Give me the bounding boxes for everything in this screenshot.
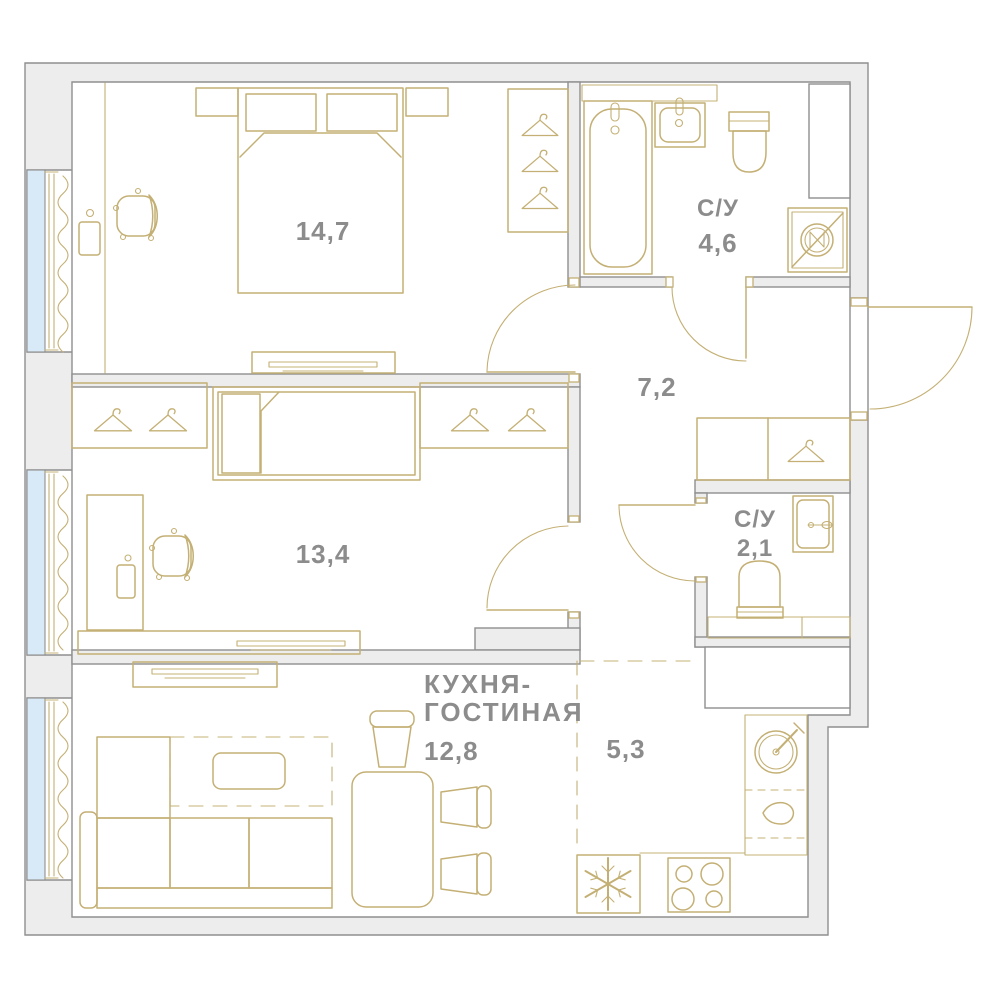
duct-shaft-kitchen: [705, 647, 850, 708]
wc-area-label: 2,1: [737, 535, 773, 562]
tv-console: [133, 662, 277, 687]
wc-counter: [708, 617, 850, 638]
kitchen-sink-icon: [755, 723, 804, 773]
bathroom-name-label: С/У: [697, 195, 739, 222]
nightstand: [196, 88, 238, 116]
toilet-icon: [737, 561, 783, 618]
office-chair-icon: [114, 189, 158, 241]
wall-end-caps: [569, 277, 867, 618]
curtain-icon: [58, 476, 68, 650]
toilet-icon: [729, 112, 769, 172]
curtain-icon: [58, 176, 68, 352]
washing-machine-icon: [788, 208, 847, 272]
desk: [79, 210, 100, 256]
sink-icon: [655, 98, 705, 147]
kitchen-zone-area-label: 5,3: [606, 734, 645, 764]
bedroom2-area-label: 13,4: [296, 539, 351, 569]
desk: [87, 495, 143, 630]
corner-sofa-icon: [80, 737, 332, 908]
stove-icon: [668, 858, 730, 912]
tv-console: [252, 352, 395, 373]
chair: [370, 711, 414, 767]
window-bedroom1: [27, 170, 68, 352]
fridge-snowflake-icon: [577, 855, 640, 913]
nightstand: [406, 88, 448, 116]
door-bedroom1: [487, 285, 575, 372]
closet-hangers: [420, 383, 568, 448]
wc-fixtures: [708, 496, 850, 638]
duct-shaft-bathroom: [809, 84, 850, 198]
sink-icon: [793, 496, 833, 552]
door-wc: [619, 505, 695, 581]
outer-walls: [25, 63, 868, 935]
chair: [441, 853, 491, 895]
bathroom-area-label: 4,6: [698, 228, 737, 258]
curtain-icon: [58, 702, 68, 878]
hall-wardrobe: [697, 418, 850, 480]
kitchen-name-line1: КУХНЯ-: [424, 669, 532, 699]
rug: [170, 737, 332, 806]
drop-icon: [763, 803, 793, 824]
shelf: [582, 85, 717, 101]
kitchen-area-label: 12,8: [424, 736, 479, 766]
window-bedroom2: [27, 470, 68, 655]
wardrobe-hangers: [72, 383, 207, 448]
bathtub-icon: [584, 101, 652, 274]
door-bedroom2: [487, 526, 568, 610]
door-entrance: [868, 307, 972, 409]
chair: [441, 786, 491, 828]
double-bed-icon: [238, 88, 403, 293]
hanger-icon: [788, 440, 824, 461]
floor-plan-page: 14,7 13,4 7,2 С/У 4,6 С/У 2,1 КУХНЯ- ГОС…: [0, 0, 1000, 1000]
wc-name-label: С/У: [734, 506, 776, 533]
bedroom2-furniture: [72, 383, 568, 654]
closet-hangers: [508, 89, 568, 232]
bedroom1-area-label: 14,7: [296, 216, 351, 246]
floor-plan: 14,7 13,4 7,2 С/У 4,6 С/У 2,1 КУХНЯ- ГОС…: [0, 0, 1000, 1000]
door-bathroom: [672, 287, 746, 361]
window-living: [27, 698, 68, 880]
hall-area-label: 7,2: [637, 372, 676, 402]
dining-table: [352, 772, 433, 907]
kitchen-name-line2: ГОСТИНАЯ: [424, 697, 584, 727]
coffee-table: [213, 753, 285, 789]
office-chair-icon: [150, 529, 194, 581]
single-bed-icon: [213, 387, 420, 480]
